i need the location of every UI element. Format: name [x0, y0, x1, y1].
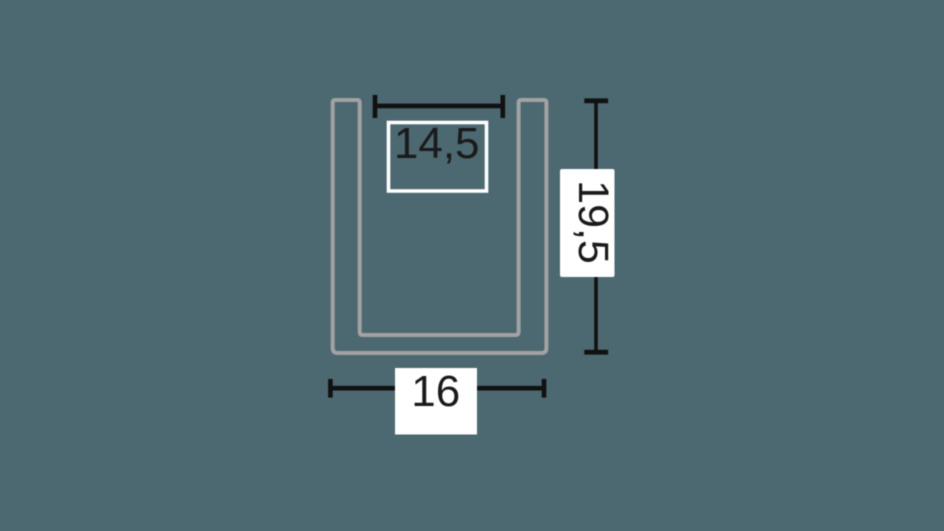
svg-text:16: 16 — [411, 367, 460, 416]
svg-text:14,5: 14,5 — [394, 119, 480, 168]
svg-text:19,5: 19,5 — [569, 180, 617, 264]
